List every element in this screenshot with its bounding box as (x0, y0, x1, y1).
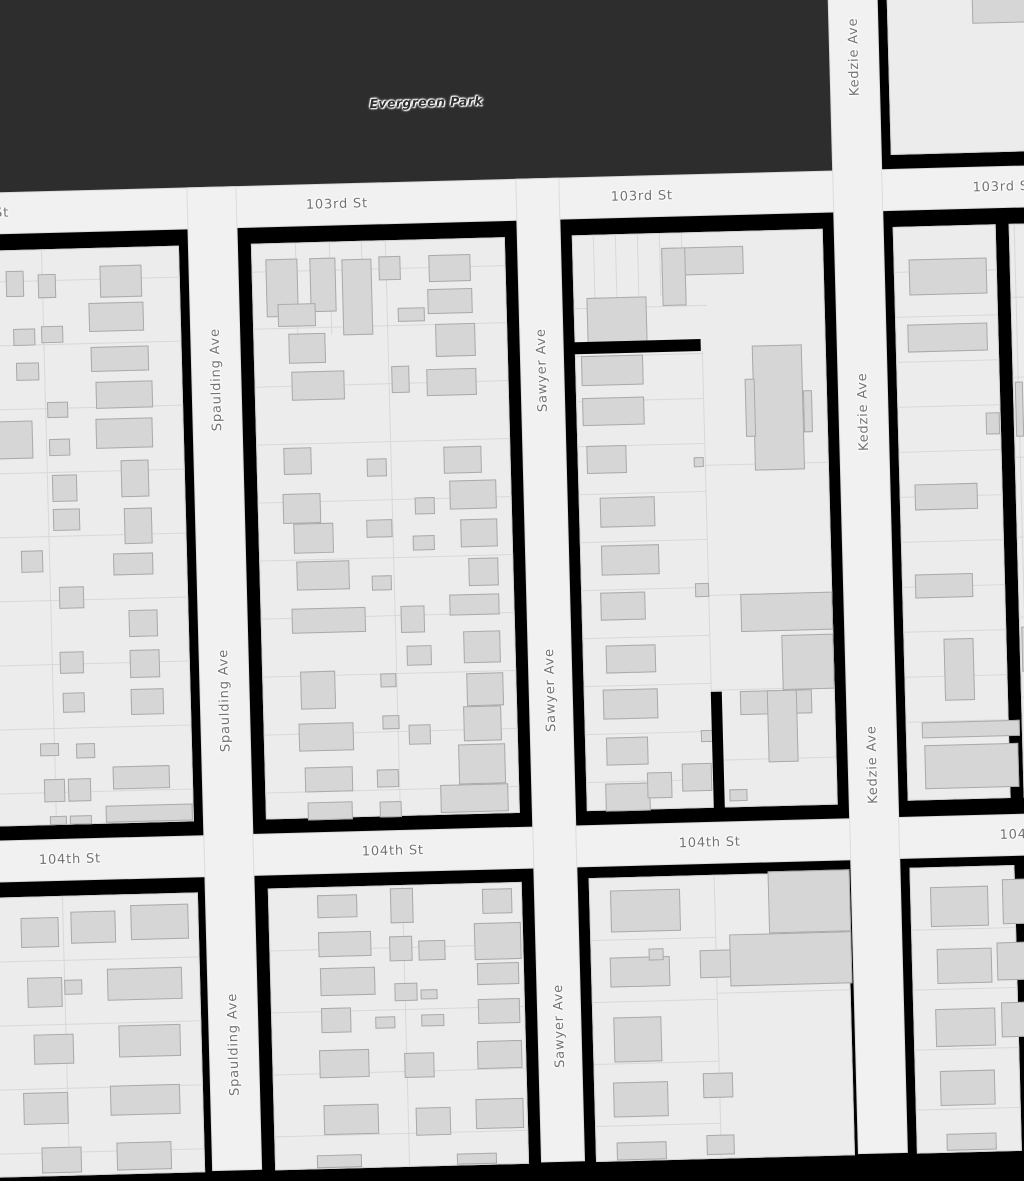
city-block (893, 224, 1011, 800)
building (600, 592, 646, 621)
building (767, 690, 799, 763)
building (319, 1049, 370, 1078)
building (661, 247, 687, 306)
building (50, 816, 67, 825)
road-label: Spaulding Ave (225, 993, 243, 1096)
building (466, 672, 504, 706)
building (121, 459, 150, 497)
building (986, 412, 1001, 434)
building (49, 439, 70, 457)
building (0, 421, 33, 460)
building (416, 1107, 452, 1136)
road-label: Kedzie Ave (846, 17, 863, 96)
building (914, 483, 978, 511)
building (440, 783, 509, 813)
road-label: 104th St (362, 843, 424, 860)
building (581, 355, 644, 387)
building (64, 979, 82, 994)
building (613, 1081, 669, 1117)
building (605, 782, 651, 811)
building (380, 801, 402, 818)
building (63, 692, 86, 713)
road-label: 104th St (39, 851, 101, 868)
road-label: Sawyer Ave (551, 984, 568, 1068)
building (909, 257, 988, 295)
road-label: Kedzie Ave (864, 725, 881, 804)
building (695, 583, 709, 597)
road-label: Sawyer Ave (534, 328, 551, 412)
map-viewport: { "map": { "rotation_deg": -1.5, "canvas… (0, 0, 1024, 1024)
building (113, 552, 154, 575)
building (468, 557, 499, 586)
building (27, 977, 63, 1008)
building (1015, 382, 1024, 437)
road-label: 104th St (679, 835, 741, 852)
building (95, 417, 153, 448)
building (293, 523, 334, 554)
map-canvas[interactable]: 103rd St103rd St103rd St103rd St104th St… (0, 0, 1024, 1179)
building (283, 447, 312, 475)
building (38, 274, 57, 298)
building (745, 379, 757, 437)
building (427, 288, 473, 314)
building (41, 326, 63, 344)
building (366, 519, 392, 538)
building (922, 720, 1020, 739)
building (323, 1104, 379, 1135)
building (781, 634, 834, 690)
building (59, 586, 85, 609)
building (443, 446, 482, 474)
building (106, 803, 193, 822)
building (415, 497, 435, 515)
building (729, 931, 852, 986)
building (477, 962, 520, 985)
building (586, 296, 647, 343)
building (943, 638, 975, 701)
building (610, 956, 671, 988)
building (606, 737, 649, 766)
building (428, 254, 471, 282)
building (606, 644, 657, 673)
building (70, 815, 92, 825)
building (44, 779, 66, 803)
building (110, 1084, 181, 1116)
building (394, 983, 417, 1002)
building (68, 778, 92, 802)
building (282, 493, 321, 524)
building (95, 380, 153, 408)
building (706, 1134, 735, 1155)
building (418, 940, 446, 961)
building (449, 479, 497, 509)
building (321, 1007, 352, 1033)
building (413, 535, 435, 551)
building (320, 967, 376, 996)
building (21, 550, 44, 573)
building (131, 688, 165, 715)
road-label: Spaulding Ave (216, 649, 234, 752)
building (88, 302, 144, 332)
building (648, 948, 663, 960)
building (924, 743, 1019, 789)
building (288, 333, 326, 364)
building (296, 560, 350, 590)
building (113, 765, 171, 789)
building (91, 345, 150, 372)
building (409, 724, 432, 745)
building (915, 573, 974, 599)
road-label: Kedzie Ave (855, 372, 872, 451)
building (946, 1133, 996, 1151)
building (463, 705, 502, 741)
building (971, 0, 1024, 24)
building (129, 649, 160, 678)
building (13, 328, 35, 346)
building (47, 402, 68, 419)
building (300, 671, 336, 710)
building (107, 967, 183, 1001)
road-label: 103rd St (972, 179, 1024, 196)
building (460, 518, 498, 547)
road-label: 103rd St (611, 188, 673, 205)
park-label: Evergreen Park (369, 93, 483, 111)
building (377, 769, 399, 788)
building (478, 998, 521, 1024)
building (482, 888, 513, 914)
building (700, 949, 733, 978)
building (603, 688, 659, 719)
building (940, 1070, 996, 1106)
building (613, 1016, 662, 1062)
building (23, 1092, 69, 1125)
building (586, 445, 627, 474)
building (291, 370, 345, 400)
building (380, 673, 396, 687)
building (41, 1146, 82, 1173)
building (6, 271, 25, 297)
building (391, 366, 410, 393)
building (647, 772, 673, 799)
road-label: Sawyer Ave (542, 648, 559, 732)
building (53, 508, 81, 531)
building (375, 1016, 395, 1029)
building (291, 607, 366, 634)
building (740, 592, 833, 632)
building (475, 1098, 524, 1129)
building (617, 1141, 667, 1160)
building (305, 766, 354, 792)
building (930, 886, 989, 928)
building (474, 922, 522, 960)
building (16, 362, 39, 381)
building (420, 989, 437, 999)
building (400, 605, 425, 633)
road-label: 103rd St (0, 206, 9, 223)
building (694, 457, 704, 467)
building (767, 869, 851, 933)
building (582, 397, 645, 427)
building (308, 801, 353, 820)
building (682, 763, 713, 792)
building (128, 609, 158, 637)
building (703, 1072, 734, 1098)
building (99, 265, 142, 298)
building (907, 322, 988, 352)
building (600, 496, 656, 527)
building (406, 645, 432, 666)
building (277, 303, 316, 327)
building (52, 474, 78, 502)
building (996, 941, 1024, 980)
building (601, 544, 660, 576)
building (477, 1040, 523, 1069)
building (404, 1052, 435, 1078)
road-label: 103rd St (306, 196, 368, 213)
building (752, 344, 805, 470)
city-block (883, 0, 1024, 155)
building (398, 307, 425, 322)
building (421, 1014, 444, 1027)
building (372, 575, 392, 591)
building (463, 630, 501, 663)
building (435, 323, 476, 357)
building (457, 1153, 497, 1165)
building (76, 743, 95, 758)
building (449, 593, 500, 615)
building (124, 507, 153, 544)
building (937, 948, 993, 984)
building (458, 743, 506, 784)
building (118, 1024, 181, 1058)
building (1002, 878, 1024, 924)
building (40, 743, 59, 756)
building (130, 904, 189, 941)
building (298, 722, 354, 751)
building (1001, 1001, 1024, 1037)
building (610, 889, 681, 933)
building (935, 1008, 996, 1048)
building (729, 789, 747, 801)
building (390, 888, 414, 924)
building (318, 931, 372, 957)
building (317, 894, 358, 918)
building (389, 936, 413, 962)
building (367, 458, 387, 477)
building (378, 256, 401, 281)
building (60, 651, 85, 674)
building (426, 368, 477, 396)
building (20, 917, 59, 948)
building (382, 715, 399, 729)
building (803, 390, 813, 432)
building (116, 1141, 172, 1170)
road-label: Spaulding Ave (208, 328, 226, 431)
building (341, 259, 373, 336)
building (317, 1154, 362, 1168)
building (70, 911, 116, 944)
building (34, 1034, 75, 1065)
road-label: 104th St (999, 826, 1024, 843)
